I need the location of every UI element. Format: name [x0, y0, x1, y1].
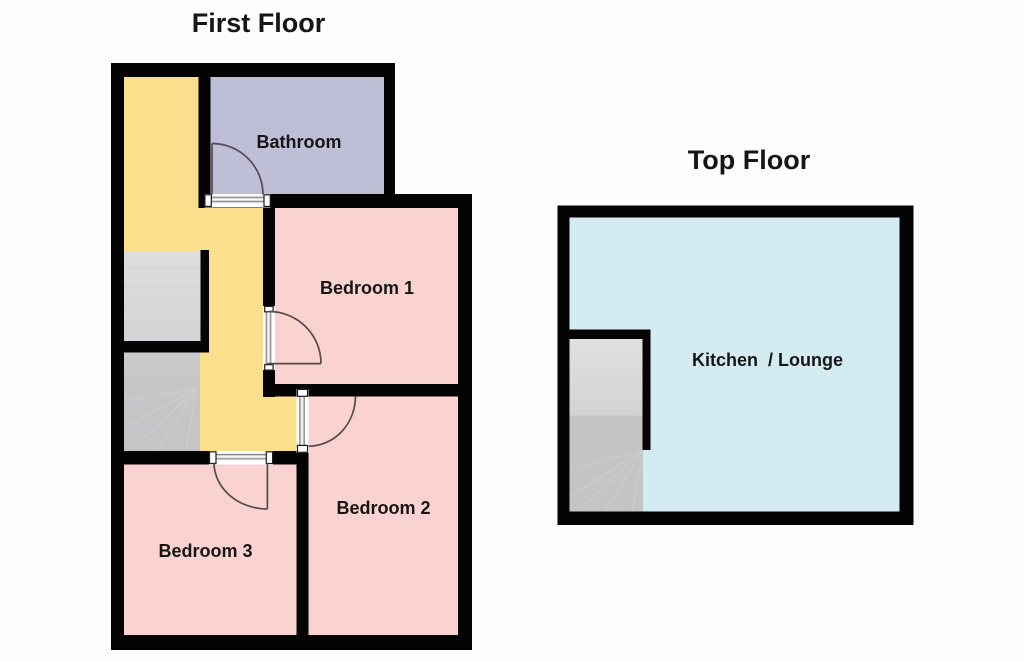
- svg-text:Bedroom 2: Bedroom 2: [336, 498, 430, 518]
- svg-text:Bathroom: Bathroom: [257, 132, 342, 152]
- svg-text:Bedroom 1: Bedroom 1: [320, 278, 414, 298]
- svg-text:Bedroom 3: Bedroom 3: [158, 541, 252, 561]
- svg-text:Kitchen / Lounge: Kitchen / Lounge: [692, 350, 843, 370]
- svg-text:First Floor: First Floor: [192, 8, 326, 38]
- svg-text:Top Floor: Top Floor: [688, 145, 811, 175]
